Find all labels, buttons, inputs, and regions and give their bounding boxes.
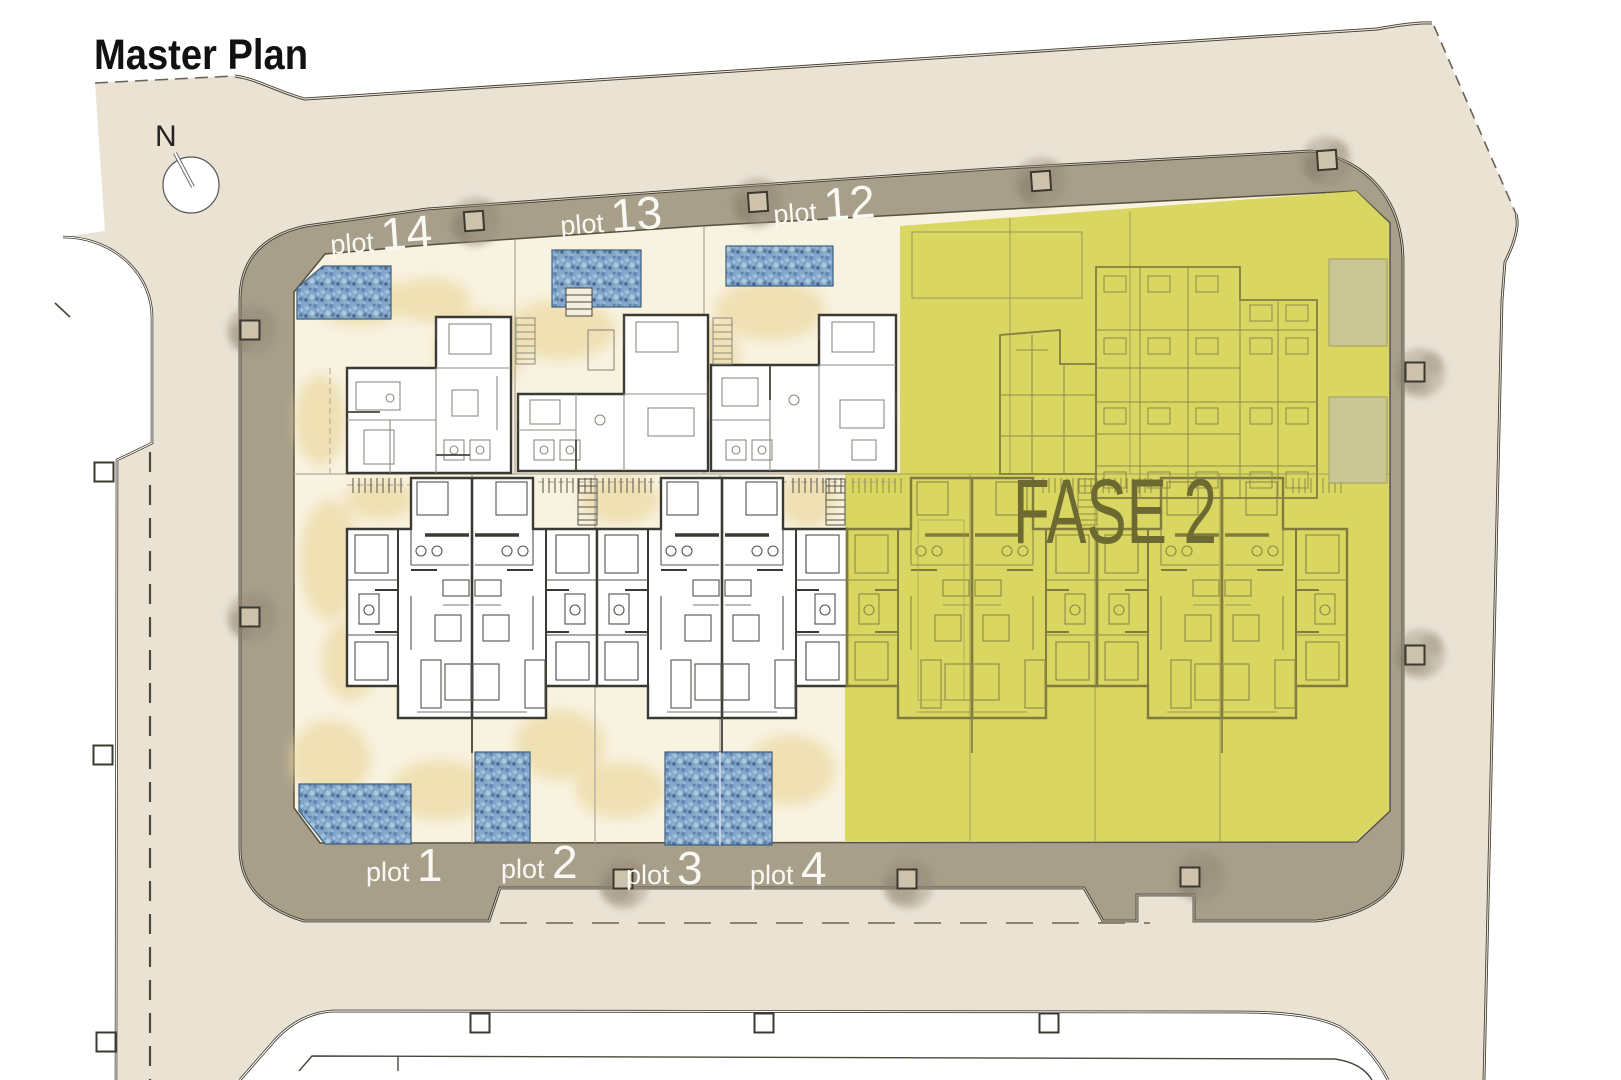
svg-text:Master Plan: Master Plan [94, 31, 308, 79]
svg-text:FASE 2: FASE 2 [1013, 461, 1217, 563]
svg-text:N: N [155, 120, 177, 153]
